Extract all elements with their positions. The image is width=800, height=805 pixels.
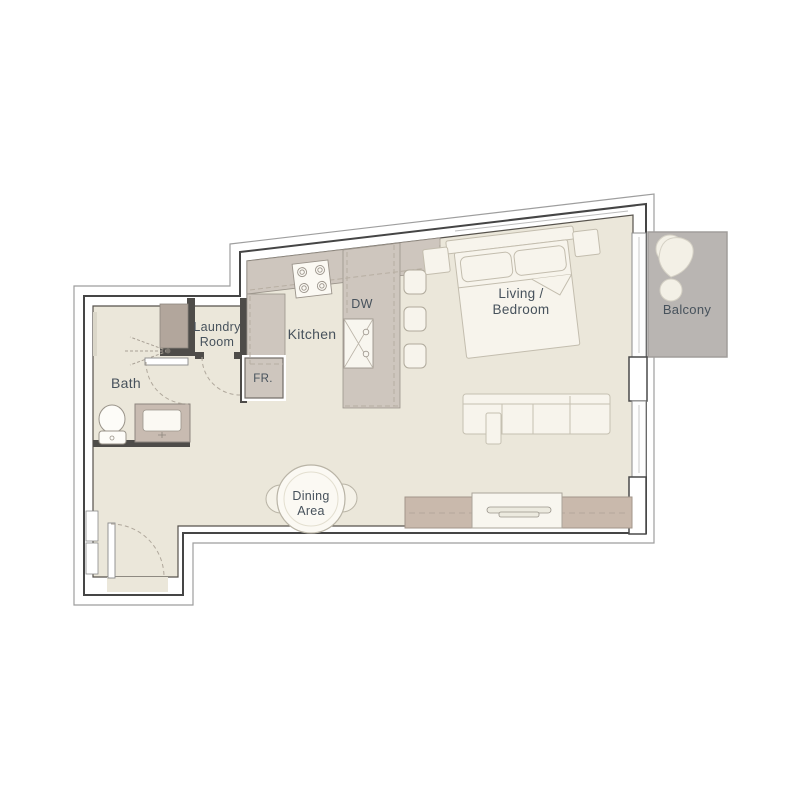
bed-pillow-left (460, 252, 514, 283)
shower-partition (160, 304, 188, 348)
laundry-label-line1: Laundry (193, 320, 241, 334)
living-label-line1: Living / (498, 286, 543, 301)
living-label-line2: Bedroom (493, 302, 550, 317)
entrance-door-leaf (108, 523, 115, 578)
fridge-label: FR. (253, 373, 272, 385)
vanity-sink-icon (143, 410, 181, 431)
balcony-area (648, 232, 727, 357)
bed-pillow-right (513, 245, 567, 276)
bar-stools (404, 270, 426, 368)
stove-body (292, 260, 332, 298)
floor-plan-page: Bath Laundry Room Kitchen FR. DW Living … (0, 0, 800, 800)
window-pier-wall (629, 357, 647, 401)
sink-faucet-dot-1 (363, 329, 369, 335)
wall-niche-lower (86, 543, 98, 574)
dishwasher-label: DW (351, 297, 372, 311)
bar-stool-icon (404, 270, 426, 294)
nightstand-right (573, 229, 601, 257)
toilet-tank-icon (99, 431, 126, 444)
dining-label-line2: Area (297, 504, 325, 518)
balcony-label: Balcony (663, 302, 712, 317)
balcony-side-table-icon (660, 279, 682, 301)
laundry-door-jamb-west (195, 352, 204, 359)
tv-stand-icon (499, 512, 539, 517)
nightstand-left (423, 247, 451, 275)
kitchen-label: Kitchen (288, 326, 337, 342)
toilet-bowl-icon (99, 405, 125, 433)
bar-stool-icon (404, 307, 426, 331)
tv-console (405, 493, 632, 528)
entrance-threshold (107, 577, 168, 592)
bath-label: Bath (111, 375, 141, 391)
dining-label-line1: Dining (292, 489, 329, 503)
floor-plan-drawing: Bath Laundry Room Kitchen FR. DW Living … (0, 0, 800, 800)
bath-door-leaf (145, 358, 188, 365)
laundry-label-line2: Room (200, 335, 235, 349)
wall-niche-upper (86, 511, 98, 541)
stove-icon (292, 260, 332, 298)
shower-glass-panel (93, 312, 97, 356)
kitchen-sink-icon (344, 319, 373, 368)
sofa-side-table (486, 413, 501, 444)
sofa-body (463, 394, 610, 434)
shower-head-dot (166, 349, 171, 354)
sink-faucet-dot-2 (363, 351, 369, 357)
bar-stool-icon (404, 344, 426, 368)
